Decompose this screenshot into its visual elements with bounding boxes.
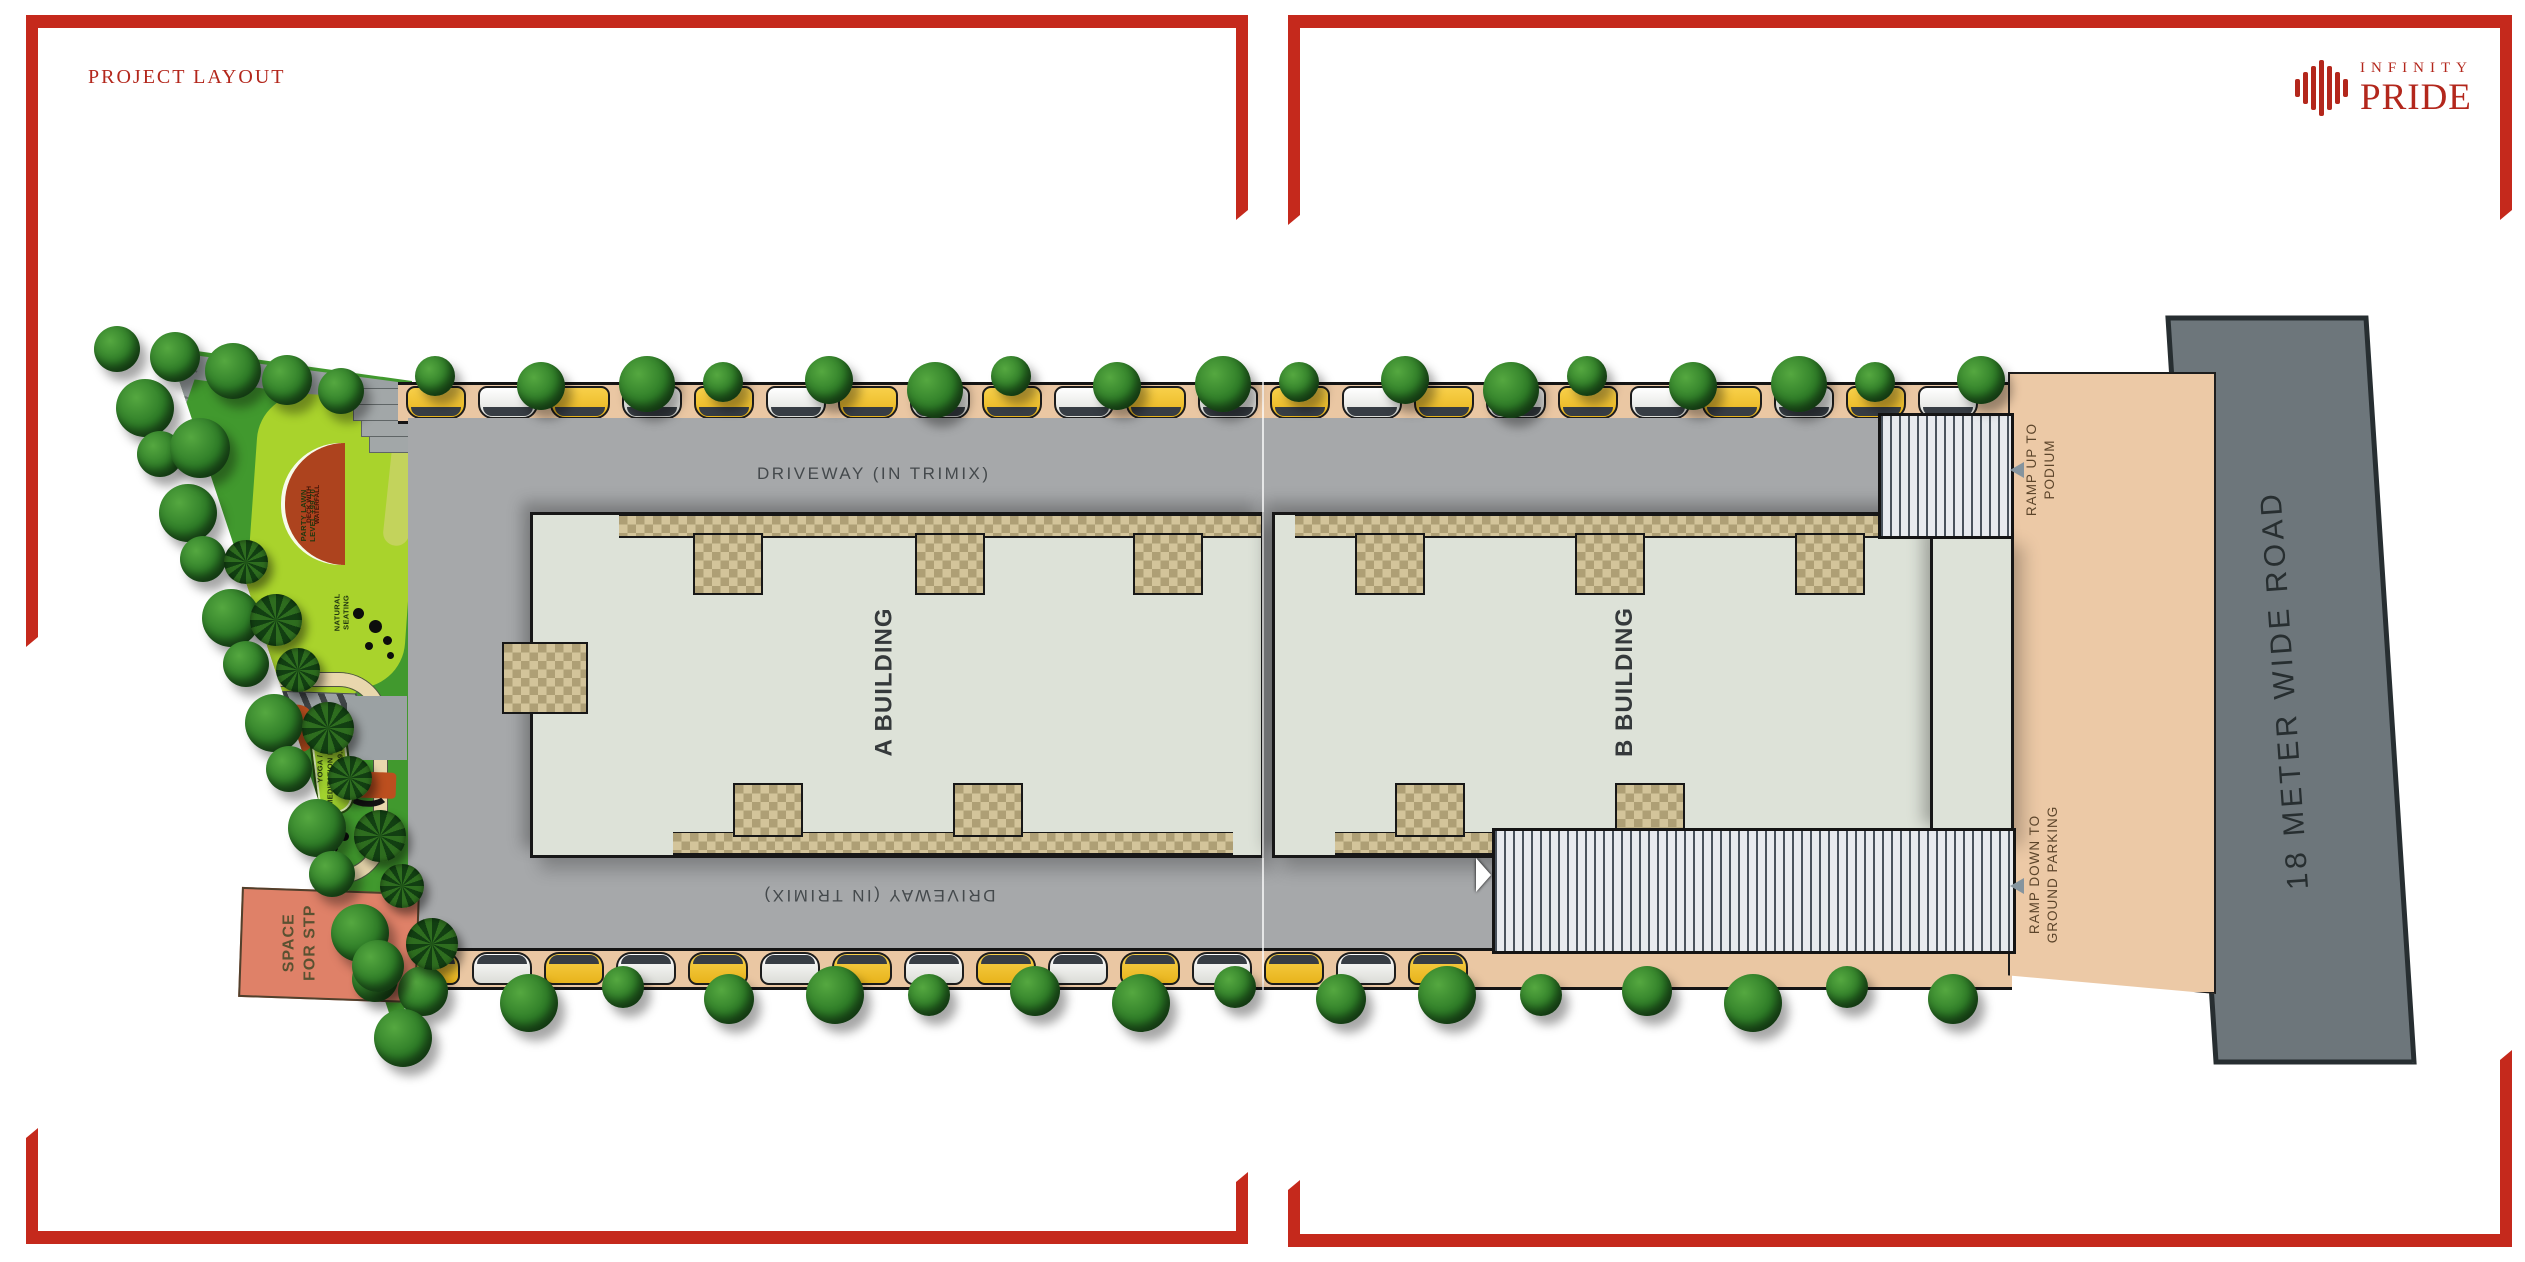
frame-right-right-bar-top: [2500, 15, 2512, 220]
tree-icon: [180, 536, 226, 582]
tree-icon: [1316, 974, 1366, 1024]
tree-icon: [223, 641, 269, 687]
tree-icon: [908, 974, 950, 1016]
ramp-down-label: RAMP DOWN TOGROUND PARKING: [2005, 795, 2083, 955]
stp-label: SPACEFOR STP: [255, 885, 345, 1000]
tree-icon: [1112, 974, 1170, 1032]
balcony-notch: [1795, 533, 1865, 595]
tree-icon: [1520, 974, 1562, 1016]
stone-dot: [369, 620, 382, 633]
natural-seating-label: NATURALSEATING: [322, 582, 362, 642]
tree-icon: [703, 362, 743, 402]
palm-tree-icon: [276, 648, 320, 692]
frame-left-top-bar: [26, 15, 1248, 28]
tree-icon: [352, 940, 404, 992]
tree-icon: [262, 355, 312, 405]
ramp-down-arrow-icon: [2010, 878, 2024, 894]
frame-left-right-stub-bottom: [1236, 1172, 1248, 1244]
tree-icon: [1093, 362, 1141, 410]
tree-icon: [205, 343, 261, 399]
tree-icon: [1010, 966, 1060, 1016]
balcony-notch: [915, 533, 985, 595]
ramp-entry-arrow-icon: [1476, 858, 1491, 892]
palm-tree-icon: [224, 540, 268, 584]
car-icon: [1264, 952, 1324, 985]
ramp-up-arrow-icon: [2010, 462, 2024, 478]
tree-icon: [245, 694, 303, 752]
brand-name-top: INFINITY: [2360, 61, 2473, 76]
palm-tree-icon: [380, 864, 424, 908]
tree-icon: [1928, 974, 1978, 1024]
tree-icon: [1622, 966, 1672, 1016]
tree-icon: [150, 332, 200, 382]
frame-right-left-stub-top: [1288, 15, 1300, 225]
building-a-label: A BUILDING: [845, 562, 925, 802]
palm-tree-icon: [328, 756, 372, 800]
frame-left-bottom-bar: [26, 1231, 1248, 1244]
tree-icon: [805, 356, 853, 404]
tree-icon: [602, 966, 644, 1008]
palm-tree-icon: [250, 594, 302, 646]
brand-logo: INFINITY PRIDE: [2292, 58, 2473, 118]
tree-icon: [1771, 356, 1827, 412]
stone-dot: [365, 642, 373, 650]
tree-icon: [288, 799, 346, 857]
tree-icon: [170, 418, 230, 478]
tree-icon: [318, 368, 364, 414]
palm-tree-icon: [302, 702, 354, 754]
site-plan: 18 METER WIDE ROAD DRIVEWAY (IN TRIMIX) …: [0, 0, 2525, 1262]
building-b-east-wing: [1930, 533, 2014, 834]
driveway-top-label: DRIVEWAY (IN TRIMIX): [757, 464, 991, 484]
brand-name-bottom: PRIDE: [2360, 79, 2473, 116]
tree-icon: [991, 356, 1031, 396]
tree-icon: [806, 966, 864, 1024]
frame-right-right-bar-bottom: [2500, 1050, 2512, 1247]
tree-icon: [94, 326, 140, 372]
tree-icon: [1214, 966, 1256, 1008]
tree-icon: [1195, 356, 1251, 412]
balcony-notch: [733, 783, 803, 837]
balcony-notch: [953, 783, 1023, 837]
driveway-bottom-label: DRIVEWAY (IN TRIMIX): [762, 885, 996, 905]
tree-icon: [517, 362, 565, 410]
tree-icon: [1855, 362, 1895, 402]
frame-right-left-stub-bottom: [1288, 1180, 1300, 1247]
tree-icon: [415, 356, 455, 396]
building-b-label: B BUILDING: [1585, 562, 1665, 802]
tree-icon: [1957, 356, 2005, 404]
tree-icon: [1567, 356, 1607, 396]
page-split-line: [1262, 330, 1264, 1046]
tree-icon: [907, 362, 963, 418]
tree-icon: [704, 974, 754, 1024]
stone-dot: [383, 636, 392, 645]
tree-icon: [1724, 974, 1782, 1032]
balcony-notch: [693, 533, 763, 595]
car-icon: [544, 952, 604, 985]
tree-icon: [266, 746, 312, 792]
frame-left-left-stub-bottom: [26, 1128, 38, 1244]
tree-icon: [500, 974, 558, 1032]
frame-right-bottom-bar: [1288, 1234, 2512, 1247]
building-a-lobby: [502, 642, 588, 714]
balcony-notch: [1133, 533, 1203, 595]
palm-tree-icon: [354, 810, 406, 862]
party-lawn-label: PARTY LAWNLEVEL +99.70: [278, 470, 338, 560]
infinity-pride-logo-icon: [2292, 58, 2350, 118]
palm-tree-icon: [406, 918, 458, 970]
ramp-down-to-parking: [1492, 828, 2016, 954]
stone-dot: [387, 652, 394, 659]
tree-icon: [309, 851, 355, 897]
ramp-up-to-podium: [1878, 413, 2014, 539]
page-title: PROJECT LAYOUT: [88, 66, 285, 89]
frame-left-right-stub-top: [1236, 15, 1248, 220]
balcony-notch: [1395, 783, 1465, 837]
tree-icon: [1418, 966, 1476, 1024]
road-label: 18 METER WIDE ROAD: [2168, 434, 2402, 947]
tree-icon: [116, 379, 174, 437]
tree-icon: [1826, 966, 1868, 1008]
frame-left-left-bar: [26, 15, 38, 647]
tree-icon: [1279, 362, 1319, 402]
balcony-notch: [1355, 533, 1425, 595]
tree-icon: [1381, 356, 1429, 404]
tree-icon: [374, 1009, 432, 1067]
tree-icon: [159, 484, 217, 542]
tree-icon: [619, 356, 675, 412]
tree-icon: [1483, 362, 1539, 418]
frame-right-top-bar: [1288, 15, 2512, 28]
tree-icon: [1669, 362, 1717, 410]
